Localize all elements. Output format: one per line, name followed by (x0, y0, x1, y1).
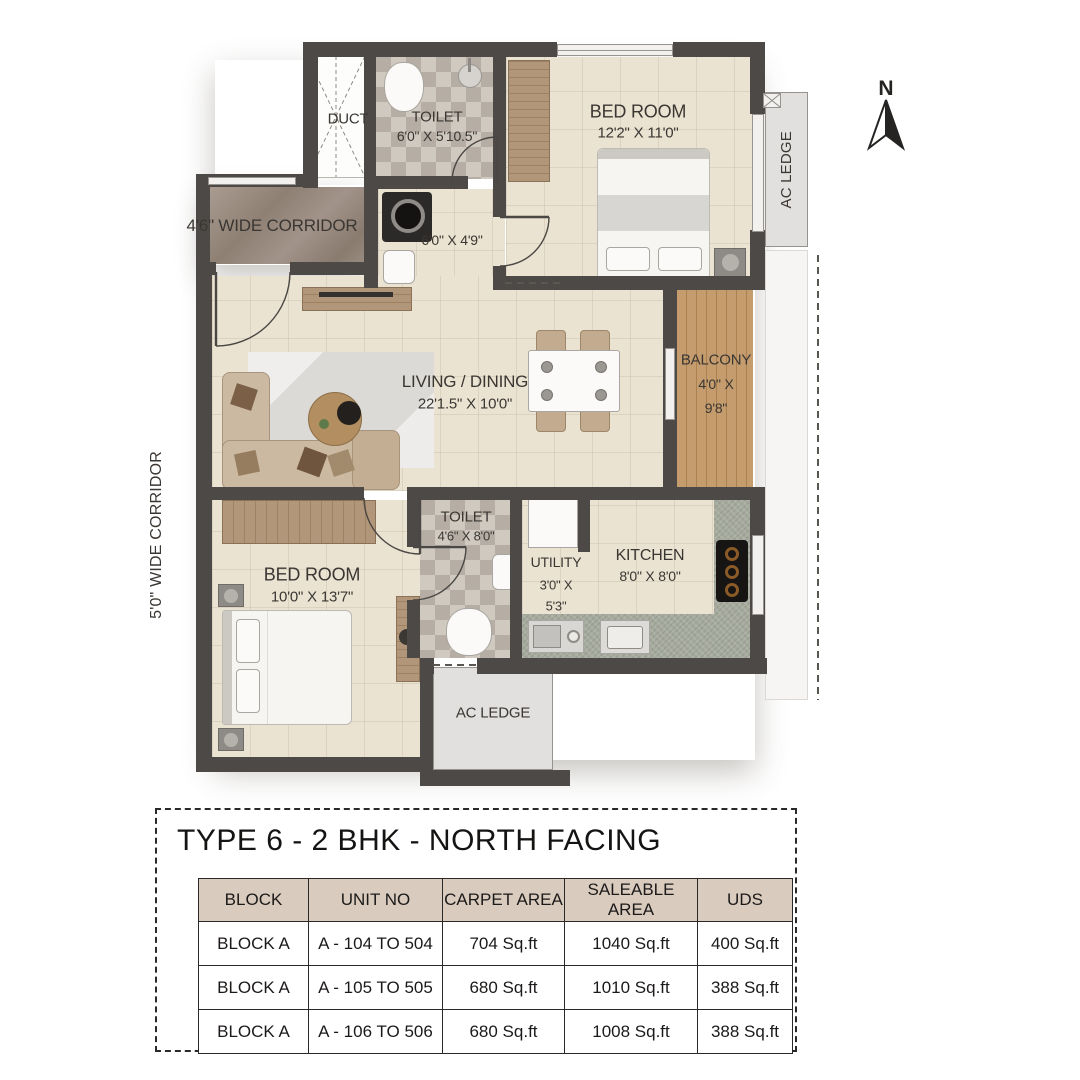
cell-carpet-area: 680 Sq.ft (443, 1010, 565, 1054)
plant-icon (319, 419, 329, 429)
wall-segment (407, 487, 765, 500)
wall-segment (420, 658, 433, 770)
utility-sink-icon (528, 620, 584, 653)
nightstand-icon (218, 728, 244, 751)
col-header-unit-no: UNIT NO (309, 879, 443, 922)
toilet-bottom-label: TOILET (440, 509, 491, 526)
wall-segment (510, 500, 522, 658)
utility-dims-1: 3'0" X (540, 578, 573, 593)
pillow-icon (236, 619, 260, 663)
col-header-block: BLOCK (199, 879, 309, 922)
cell-saleable-area: 1040 Sq.ft (565, 922, 698, 966)
coffee-table-icon (308, 392, 362, 446)
wall-segment (407, 600, 420, 658)
wardrobe-icon (222, 500, 376, 544)
kitchen-sink-icon (600, 620, 650, 654)
table-leg (595, 361, 607, 373)
sink-basin (607, 626, 643, 649)
bedroom-top-label: BED ROOM (590, 102, 686, 123)
unit-spec-table: BLOCK UNIT NO CARPET AREA SALEABLE AREA … (198, 878, 793, 1054)
cell-unit-no: A - 106 TO 506 (309, 1010, 443, 1054)
wall-segment (493, 266, 506, 290)
cell-block: BLOCK A (199, 922, 309, 966)
hob-icon (716, 540, 748, 602)
plan-title: TYPE 6 - 2 BHK - NORTH FACING (177, 824, 661, 858)
ac-ledge-right-label: AC LEDGE (778, 131, 795, 208)
wall-segment (578, 500, 590, 552)
balcony-label: BALCONY (681, 352, 751, 369)
table-row: BLOCK A A - 104 TO 504 704 Sq.ft 1040 Sq… (199, 922, 793, 966)
washing-machine-door (391, 199, 425, 233)
bed-headboard (223, 611, 232, 724)
corridor-top-label: 4'6" WIDE CORRIDOR (187, 216, 358, 236)
cell-block: BLOCK A (199, 966, 309, 1010)
wall-segment (500, 276, 765, 290)
lamp-icon (224, 589, 238, 603)
balcony-dims-2: 9'8" (705, 400, 727, 416)
pillow-icon (606, 247, 650, 271)
info-panel: TYPE 6 - 2 BHK - NORTH FACING BLOCK UNIT… (155, 808, 797, 1052)
coffee-tray-icon (337, 401, 361, 425)
table-leg (595, 389, 607, 401)
wall-segment (212, 487, 364, 500)
utility-appliance-icon (528, 492, 578, 548)
bedroom-top-dims: 12'2" X 11'0" (597, 125, 678, 142)
north-compass-icon: N (869, 77, 903, 148)
toilet-bottom-dims: 4'6" X 8'0" (438, 529, 495, 544)
table-row: BLOCK A A - 105 TO 505 680 Sq.ft 1010 Sq… (199, 966, 793, 1010)
wall-segment (420, 770, 570, 786)
burner (725, 583, 739, 597)
ac-ledge-right: AC LEDGE (765, 92, 808, 247)
utility-label: UTILITY (531, 554, 582, 570)
bed-icon (597, 148, 710, 278)
table-leg (541, 389, 553, 401)
corridor-left-label: 5'0" WIDE CORRIDOR (148, 451, 166, 619)
window (752, 114, 764, 232)
dining-table-icon (528, 350, 620, 412)
wc-icon (384, 62, 424, 112)
bedroom-bottom-label: BED ROOM (264, 565, 360, 586)
wc-icon (446, 608, 492, 656)
exterior-ledge-strip (765, 250, 808, 700)
living-dims: 22'1.5" X 10'0" (418, 396, 512, 413)
lamp-icon (224, 733, 238, 747)
cell-saleable-area: 1010 Sq.ft (565, 966, 698, 1010)
sink-bowl (567, 630, 580, 643)
corridor-left: 5'0" WIDE CORRIDOR (140, 415, 174, 655)
bed-headboard (598, 149, 709, 159)
cell-uds: 388 Sq.ft (698, 966, 793, 1010)
table-leg (541, 361, 553, 373)
sofa-chaise (352, 430, 400, 490)
window (752, 535, 764, 615)
burner (725, 547, 739, 561)
nightstand-icon (714, 248, 746, 278)
burner (725, 565, 739, 579)
tv-unit-icon (302, 287, 412, 311)
table-row: BLOCK A A - 106 TO 506 680 Sq.ft 1008 Sq… (199, 1010, 793, 1054)
wall-segment (196, 757, 432, 772)
wall-segment (477, 658, 767, 674)
wall-segment (407, 500, 420, 547)
bedroom-bottom-dims: 10'0" X 13'7" (271, 589, 353, 606)
cell-saleable-area: 1008 Sq.ft (565, 1010, 698, 1054)
cell-uds: 400 Sq.ft (698, 922, 793, 966)
utility-dims-2: 5'3" (546, 599, 567, 614)
duvet-fold (267, 611, 268, 724)
small-window (763, 93, 781, 108)
toilet-top-label: TOILET (411, 109, 462, 126)
floorplan-page: AC LEDGE AC LEDGE (0, 0, 1080, 1080)
cell-carpet-area: 704 Sq.ft (443, 922, 565, 966)
wall-segment (493, 55, 506, 217)
cell-unit-no: A - 105 TO 505 (309, 966, 443, 1010)
nightstand-icon (218, 584, 244, 607)
washbasin-icon (383, 250, 415, 284)
table-header-row: BLOCK UNIT NO CARPET AREA SALEABLE AREA … (199, 879, 793, 922)
wall-segment (196, 262, 212, 772)
kitchen-label: KITCHEN (616, 547, 685, 565)
sink-drainboard (533, 625, 561, 648)
bed-blanket-band (598, 195, 709, 231)
wall-segment (303, 55, 318, 188)
lamp-icon (722, 254, 739, 271)
col-header-carpet-area: CARPET AREA (443, 879, 565, 922)
cell-block: BLOCK A (199, 1010, 309, 1054)
pillow-icon (236, 669, 260, 713)
wall-segment (364, 176, 468, 189)
foyer-dims: 6'0" X 4'9" (421, 232, 482, 248)
ac-ledge-bottom-label: AC LEDGE (456, 705, 530, 722)
col-header-uds: UDS (698, 879, 793, 922)
toilet-top-dims: 6'0" X 5'10.5" (397, 128, 477, 144)
window (208, 177, 296, 185)
cell-unit-no: A - 104 TO 504 (309, 922, 443, 966)
bed-icon (222, 610, 352, 725)
shower-arm (468, 58, 471, 72)
wall-segment (290, 262, 378, 275)
compass-n-label: N (878, 77, 893, 100)
wardrobe-icon (508, 60, 550, 182)
window (557, 44, 673, 56)
pillow-icon (658, 247, 702, 271)
living-label: LIVING / DINING (402, 372, 528, 392)
cell-carpet-area: 680 Sq.ft (443, 966, 565, 1010)
cushion-icon (234, 450, 260, 476)
balcony-slider (665, 348, 675, 420)
col-header-saleable-area: SALEABLE AREA (565, 879, 698, 922)
balcony-dims-1: 4'0" X (698, 376, 733, 392)
duct-label: DUCT (328, 111, 369, 128)
wall-segment (303, 42, 557, 57)
kitchen-dims: 8'0" X 8'0" (619, 568, 680, 584)
cell-uds: 388 Sq.ft (698, 1010, 793, 1054)
tv-icon (319, 292, 393, 297)
